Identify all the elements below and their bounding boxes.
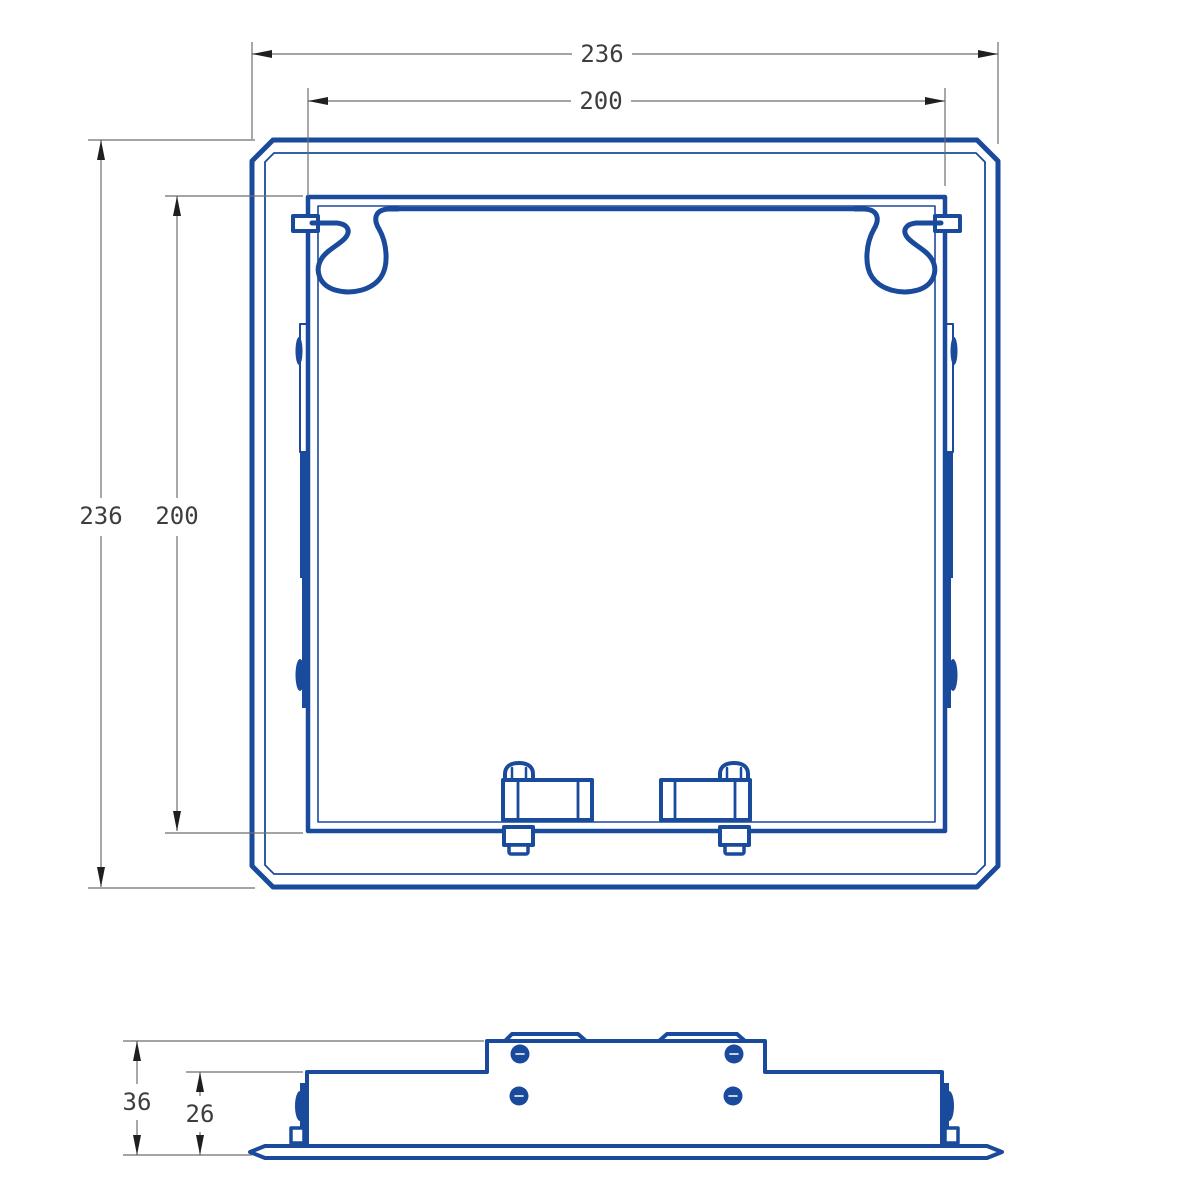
front-left-detail [293, 209, 592, 854]
front-right-detail [661, 209, 960, 854]
arrowhead [252, 50, 272, 58]
arrowhead [173, 811, 181, 831]
arrowhead [308, 97, 328, 105]
arrowhead [133, 1041, 141, 1061]
arrowhead [925, 97, 945, 105]
side-strip-bump-lower [296, 659, 305, 691]
arrowhead [196, 1072, 204, 1092]
latch-bolt-head [505, 763, 533, 780]
arrowhead [133, 1135, 141, 1155]
dim-label-front-outer-height: 236 [79, 502, 122, 530]
dim-front-outer-width: 236 [252, 40, 998, 144]
arrowhead [978, 50, 998, 58]
clip-tab [291, 1128, 304, 1143]
dim-side-panel-depth: 26 [186, 1072, 303, 1155]
panel-body-profile [307, 1041, 942, 1146]
latch-nut-tab [509, 845, 528, 854]
side-strip-lower [302, 578, 307, 708]
technical-drawing-canvas: 236 200 236 [0, 0, 1200, 1200]
arrowhead [196, 1135, 204, 1155]
dim-label-front-inner-height: 200 [155, 502, 198, 530]
side-strip-bump [296, 337, 303, 365]
dim-label-front-outer-width: 236 [580, 40, 623, 68]
arrowhead [173, 196, 181, 216]
arrowhead [97, 867, 105, 887]
arrowhead [97, 140, 105, 160]
outer-frame-inner-line [265, 153, 985, 874]
drawing-sheet: 236 200 236 [0, 0, 1200, 1200]
door-panel-inner-line [318, 206, 935, 822]
side-strip-solid [300, 452, 308, 578]
dim-label-front-inner-width: 200 [579, 87, 622, 115]
front-view [252, 140, 998, 887]
dim-label-side-panel-depth: 26 [186, 1100, 215, 1128]
spring-clip [312, 209, 398, 292]
outer-frame-edge [252, 140, 998, 887]
side-view [250, 1034, 1002, 1158]
door-panel-edge [308, 197, 945, 831]
dim-label-side-overall-depth: 36 [123, 1088, 152, 1116]
side-clip-left [291, 1083, 307, 1146]
latch-nut [504, 827, 533, 845]
side-clip-right [942, 1083, 958, 1146]
clip-bump [295, 1091, 305, 1121]
dim-front-inner-height: 200 [155, 196, 303, 833]
